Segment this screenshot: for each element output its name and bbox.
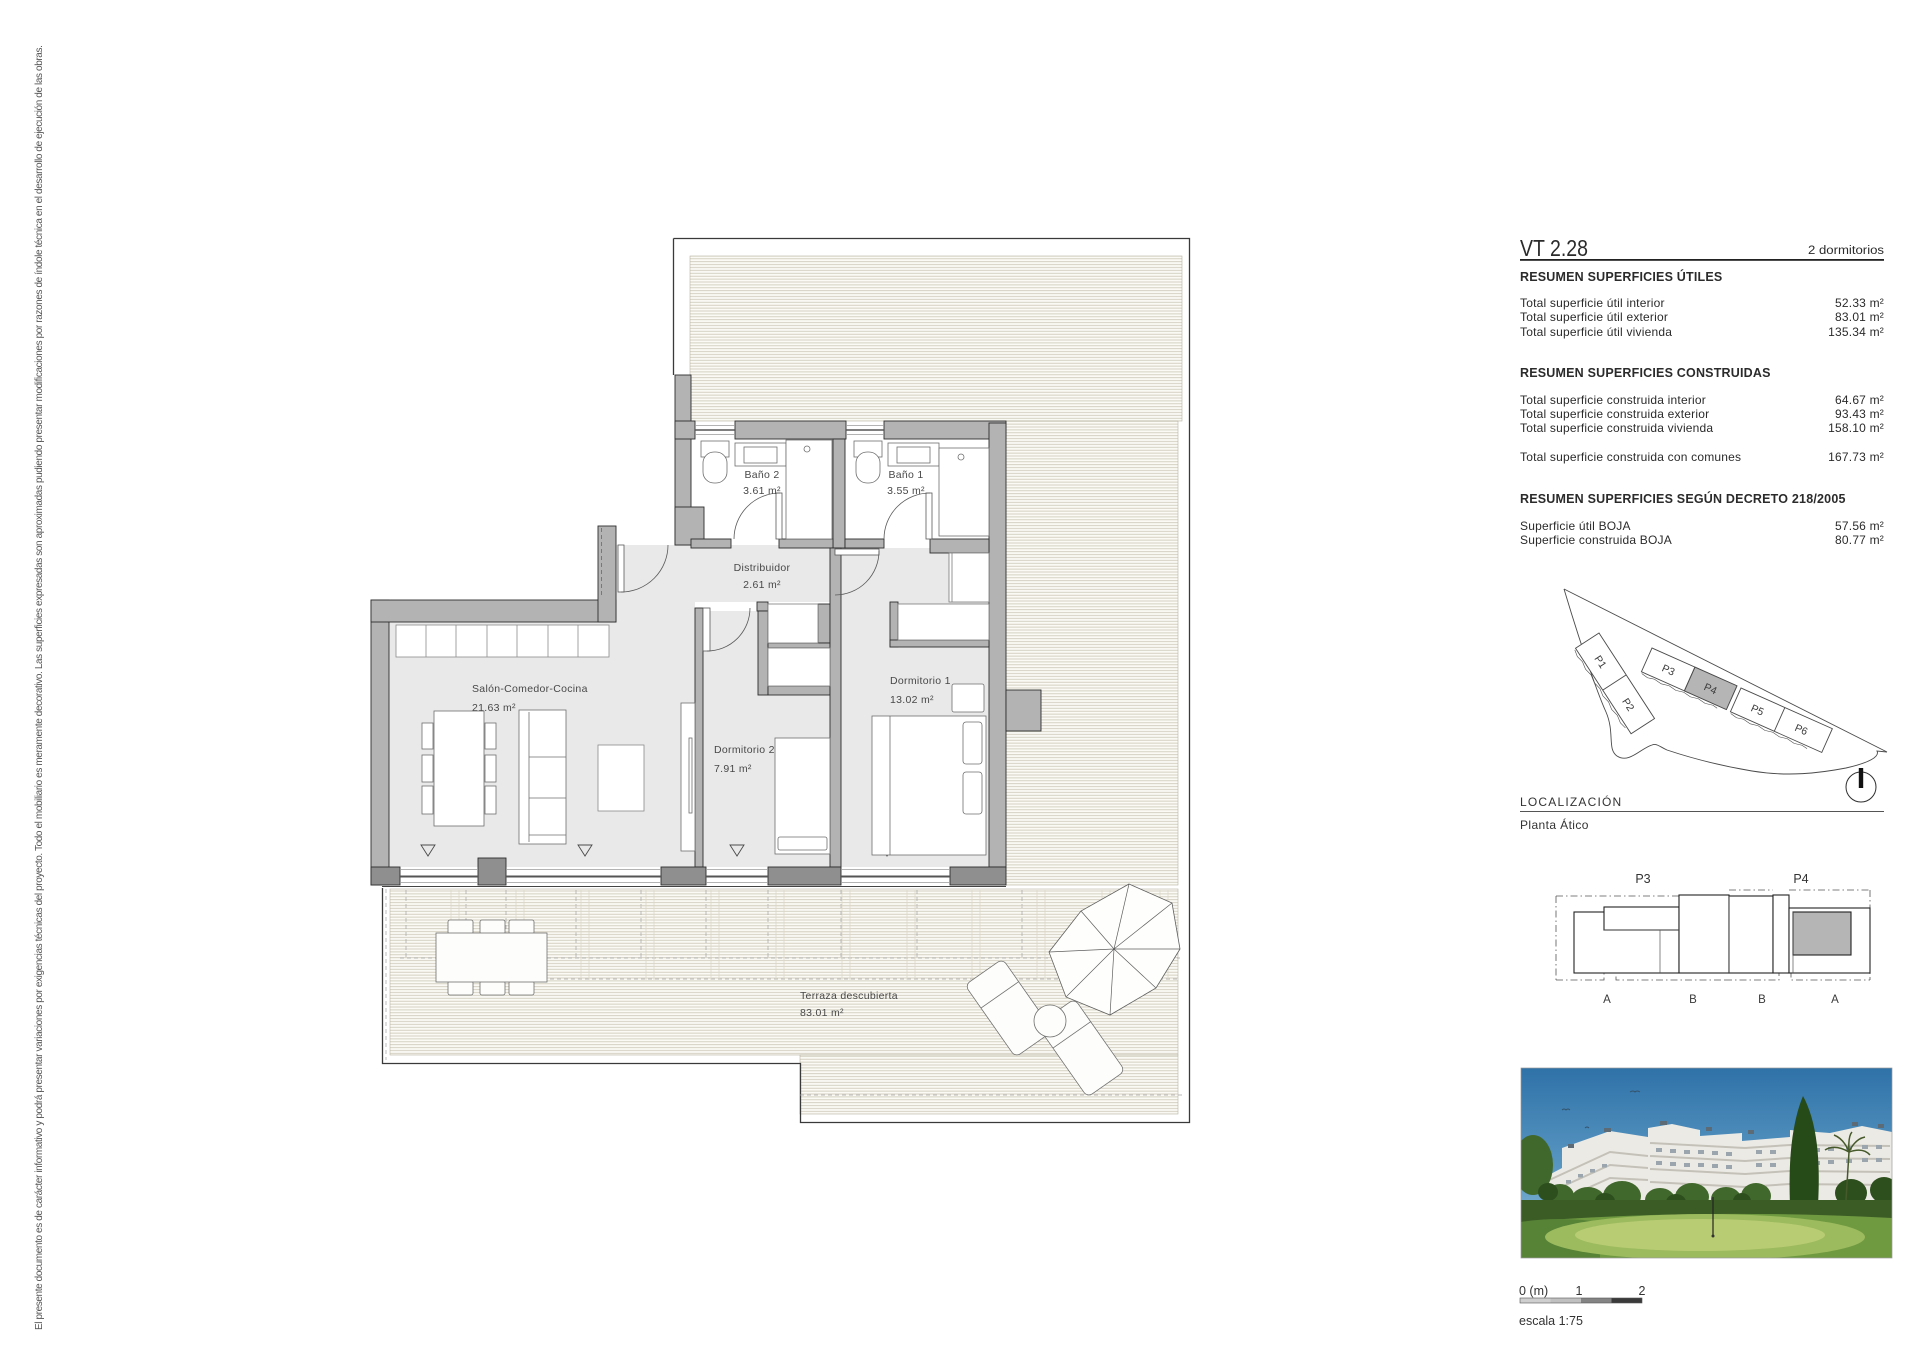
svg-text:LOCALIZACIÓN: LOCALIZACIÓN (1520, 794, 1622, 809)
svg-text:0 (m): 0 (m) (1519, 1284, 1548, 1298)
svg-text:Planta Ático: Planta Ático (1520, 817, 1589, 832)
svg-text:Total superficie construida co: Total superficie construida con comunes (1520, 450, 1741, 464)
svg-text:Total superficie construida in: Total superficie construida interior (1520, 393, 1706, 407)
svg-text:Total superficie útil vivienda: Total superficie útil vivienda (1520, 325, 1672, 339)
svg-text:57.56 m²: 57.56 m² (1835, 519, 1884, 533)
svg-text:VT 2.28: VT 2.28 (1520, 235, 1588, 261)
svg-text:Total superficie útil exterior: Total superficie útil exterior (1520, 310, 1668, 324)
svg-text:7.91 m²: 7.91 m² (714, 763, 752, 775)
svg-text:Total superficie útil interior: Total superficie útil interior (1520, 296, 1665, 310)
svg-text:93.43 m²: 93.43 m² (1835, 407, 1884, 421)
svg-text:escala 1:75: escala 1:75 (1519, 1314, 1583, 1328)
svg-text:3.55 m²: 3.55 m² (887, 485, 925, 497)
svg-text:Baño 1: Baño 1 (888, 469, 923, 481)
svg-text:83.01 m²: 83.01 m² (1835, 310, 1884, 324)
svg-text:RESUMEN SUPERFICIES SEGÚN DECR: RESUMEN SUPERFICIES SEGÚN DECRETO 218/20… (1520, 491, 1846, 506)
svg-text:P3: P3 (1635, 872, 1650, 886)
svg-text:Baño 2: Baño 2 (744, 469, 779, 481)
svg-text:Terraza descubierta: Terraza descubierta (800, 990, 898, 1002)
svg-text:Dormitorio 2: Dormitorio 2 (714, 744, 775, 756)
svg-text:El presente documento es de ca: El presente documento es de carácter inf… (34, 45, 45, 1330)
svg-text:52.33 m²: 52.33 m² (1835, 296, 1884, 310)
svg-text:1: 1 (1576, 1284, 1583, 1298)
svg-text:Superficie útil BOJA: Superficie útil BOJA (1520, 519, 1631, 533)
svg-text:Distribuidor: Distribuidor (734, 562, 791, 574)
svg-text:80.77 m²: 80.77 m² (1835, 533, 1884, 547)
svg-text:64.67 m²: 64.67 m² (1835, 393, 1884, 407)
svg-text:Dormitorio 1: Dormitorio 1 (890, 675, 951, 687)
svg-text:2: 2 (1639, 1284, 1646, 1298)
svg-text:RESUMEN SUPERFICIES ÚTILES: RESUMEN SUPERFICIES ÚTILES (1520, 269, 1722, 284)
svg-text:135.34 m²: 135.34 m² (1828, 325, 1884, 339)
svg-text:158.10 m²: 158.10 m² (1828, 421, 1884, 435)
svg-text:21.63 m²: 21.63 m² (472, 702, 516, 714)
svg-text:Superficie construida BOJA: Superficie construida BOJA (1520, 533, 1672, 547)
svg-text:B: B (1689, 994, 1697, 1006)
svg-text:Total superficie construida ex: Total superficie construida exterior (1520, 407, 1709, 421)
svg-text:A: A (1831, 994, 1839, 1006)
svg-text:3.61 m²: 3.61 m² (743, 485, 781, 497)
svg-text:A: A (1603, 994, 1611, 1006)
svg-text:2 dormitorios: 2 dormitorios (1808, 245, 1884, 257)
svg-text:P4: P4 (1793, 872, 1808, 886)
svg-text:RESUMEN SUPERFICIES CONSTRUIDA: RESUMEN SUPERFICIES CONSTRUIDAS (1520, 366, 1771, 380)
svg-text:13.02 m²: 13.02 m² (890, 694, 934, 706)
svg-text:Salón-Comedor-Cocina: Salón-Comedor-Cocina (472, 683, 588, 695)
svg-text:167.73 m²: 167.73 m² (1828, 450, 1884, 464)
svg-text:2.61 m²: 2.61 m² (743, 579, 781, 591)
svg-text:B: B (1758, 994, 1766, 1006)
svg-text:Total superficie construida vi: Total superficie construida vivienda (1520, 421, 1713, 435)
svg-text:83.01 m²: 83.01 m² (800, 1007, 844, 1019)
